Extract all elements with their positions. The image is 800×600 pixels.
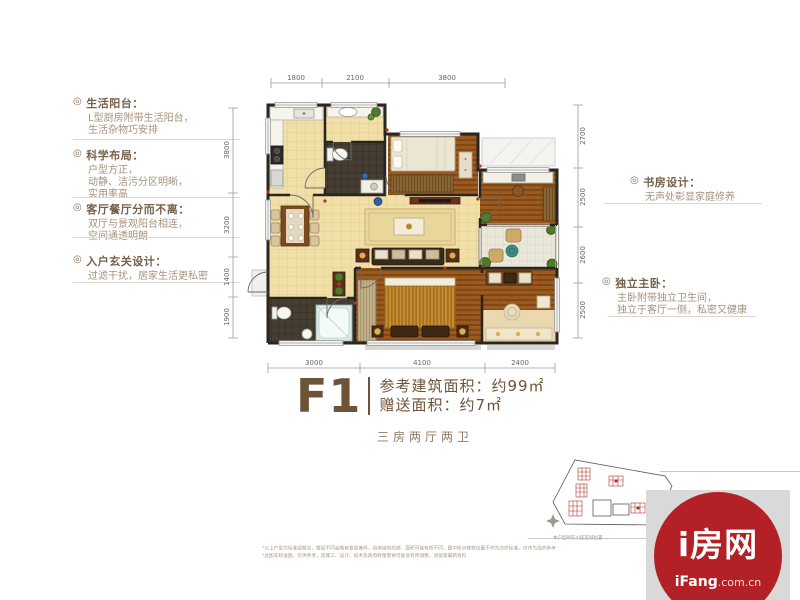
annotation-title: 入户玄关设计： [86, 253, 167, 269]
annotation-title: 科学布局： [86, 147, 144, 163]
svg-text:2100: 2100 [346, 74, 364, 82]
target-bullet-icon: ◎ [602, 275, 611, 288]
table [537, 296, 550, 308]
build-area: 参考建筑面积：约99㎡ [379, 377, 544, 396]
svg-text:3200: 3200 [223, 216, 231, 234]
table [506, 245, 518, 257]
dresser [459, 152, 472, 178]
svg-text:1900: 1900 [223, 308, 231, 326]
chair [271, 223, 280, 233]
chair [310, 236, 319, 246]
target-bullet-icon: ◎ [630, 174, 639, 187]
bookshelf [543, 187, 555, 221]
wicker-chair [489, 249, 503, 262]
svg-text:3000: 3000 [305, 359, 323, 367]
annotation-title: 生活阳台： [86, 95, 144, 111]
disclaimer-line: *此图非标准图，仅供参考，因施工、设计、技术及政府政策需要可能会有所调整，请留意… [262, 552, 610, 559]
bed [385, 286, 455, 328]
plant [335, 287, 343, 295]
svg-text:2500: 2500 [579, 188, 587, 206]
logo-name: i房网 [646, 518, 790, 566]
svg-text:2600: 2600 [579, 246, 587, 264]
annotation-title: 客厅餐厅分而不离： [86, 201, 190, 217]
svg-text:1400: 1400 [223, 268, 231, 286]
svg-text:2500: 2500 [579, 301, 587, 319]
vase [362, 173, 368, 179]
ifang-logo: i房网 iFang.com.cn [646, 490, 790, 600]
svg-text:1800: 1800 [287, 74, 305, 82]
annotation-master: ◎ 独立主卧： 主卧附带独立卫生间， 独立于客厅一侧，私密又健康 [602, 275, 787, 317]
parapet [487, 345, 555, 350]
bowl [374, 198, 382, 206]
svg-text:2700: 2700 [579, 127, 587, 145]
toilet [277, 307, 291, 319]
svg-text:4100: 4100 [413, 359, 431, 367]
wardrobe [391, 175, 453, 192]
unit-code: F1 [296, 374, 361, 418]
divider [608, 316, 756, 317]
ottoman [504, 304, 520, 320]
chair [310, 223, 319, 233]
fridge [271, 170, 283, 186]
wicker-chair [506, 229, 521, 242]
target-bullet-icon: ◎ [73, 147, 82, 160]
disclaimer-line: *以上户型为标准层概念，楼层不同会略有变更差异，具体结构局部、面积可能有所不同，… [262, 545, 610, 552]
chair [271, 210, 280, 220]
divider [368, 377, 370, 415]
floorplan-drawing: 1800 2100 3800 3000 4100 2400 3800 3200 … [215, 60, 600, 375]
plant [335, 273, 343, 281]
svg-text:2400: 2400 [511, 359, 529, 367]
chair [271, 236, 280, 246]
target-bullet-icon: ◎ [73, 201, 82, 214]
chair [310, 210, 319, 220]
ac-ledge [482, 138, 555, 166]
logo-site: iFang.com.cn [646, 574, 790, 590]
gift-area: 赠送面积：约7㎡ [379, 396, 544, 415]
unit-info: F1 参考建筑面积：约99㎡ 赠送面积：约7㎡ [296, 374, 545, 418]
divider [604, 203, 762, 204]
room-count: 三房两厅两卫 [330, 428, 520, 445]
annotation-study: ◎ 书房设计： 无声处彰显家庭修养 [630, 174, 790, 204]
target-bullet-icon: ◎ [73, 95, 82, 108]
disclaimer: *以上户型为标准层概念，楼层不同会略有变更差异，具体结构局部、面积可能有所不同，… [262, 545, 610, 559]
annotation-title: 独立主卧： [615, 275, 673, 291]
minimap-caption: 本户型所在小区区域位置 [553, 534, 603, 541]
chair [513, 186, 524, 197]
compass-icon [546, 514, 560, 528]
annotation-title: 书房设计： [643, 174, 701, 190]
entry-hall [333, 272, 345, 296]
target-bullet-icon: ◎ [73, 253, 82, 266]
annotation-line: 主卧附带独立卫生间， [617, 293, 787, 305]
svg-text:3800: 3800 [223, 141, 231, 159]
basin [302, 329, 312, 339]
svg-text:3800: 3800 [438, 74, 456, 82]
floorplan-page: { "annotations_left": [ {"title":"生活阳台："… [0, 0, 800, 600]
parapet [365, 345, 481, 350]
